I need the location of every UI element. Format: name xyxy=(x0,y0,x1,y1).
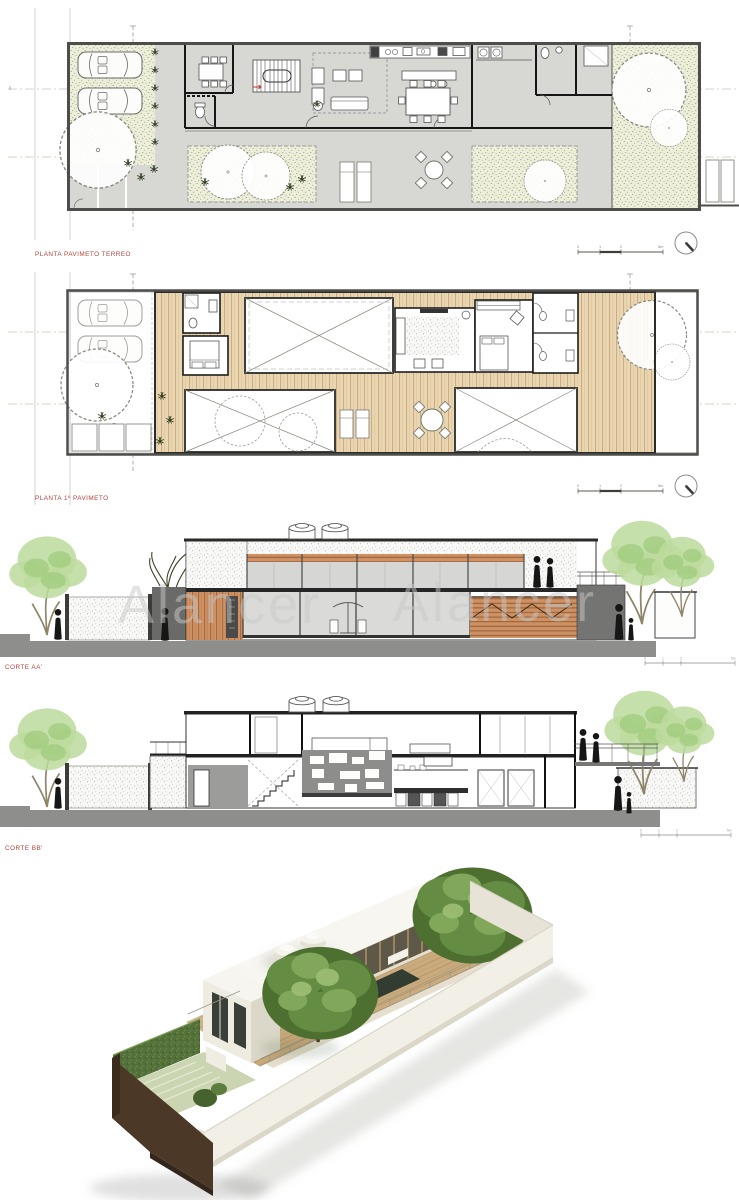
svg-text:0: 0 xyxy=(644,657,646,661)
plan-body xyxy=(60,43,739,210)
svg-text:5m: 5m xyxy=(727,829,732,833)
scale-tick: 0 xyxy=(577,244,580,249)
section-aa-label: CORTE AA' xyxy=(5,664,42,671)
toilet xyxy=(195,103,205,118)
svg-text:5m: 5m xyxy=(731,657,736,661)
svg-text:2: 2 xyxy=(676,829,678,833)
tree-plan xyxy=(61,349,133,421)
void-over-living xyxy=(245,298,393,373)
edge-loungers xyxy=(700,160,739,206)
study-room xyxy=(199,57,227,87)
water-tank-icon xyxy=(322,523,348,539)
svg-text:0: 0 xyxy=(640,829,642,833)
tv-room xyxy=(395,308,475,372)
void-over-courtyard-1 xyxy=(185,390,335,452)
bathrooms-2-3 xyxy=(533,293,578,373)
north-arrow-icon xyxy=(675,232,697,254)
bookshelf xyxy=(302,750,392,797)
ground xyxy=(0,806,660,827)
water-tank-icon xyxy=(323,696,349,712)
scale-bar-small: 0 1 2 5m xyxy=(644,657,736,666)
plan-body xyxy=(61,290,698,455)
stairs xyxy=(253,60,300,92)
svg-text:1: 1 xyxy=(658,829,660,833)
bedroom-2 xyxy=(475,300,533,372)
water-tank-icon xyxy=(289,696,315,712)
bedroom-1 xyxy=(183,336,228,375)
scale-tick: 0 xyxy=(577,483,580,488)
scale-tick: 1 xyxy=(599,244,601,249)
building-section xyxy=(150,711,577,808)
void-over-courtyard-2 xyxy=(455,388,577,452)
plan-first-label: PLANTA 1º PAVIMETO xyxy=(35,495,109,502)
ground-floor-plan: 0 1 2 5m PLANTA PAVIMETO TERREO xyxy=(0,0,739,268)
north-arrow-icon xyxy=(675,475,697,497)
water-tank-icon xyxy=(289,523,315,539)
section-bb-label: CORTE BB' xyxy=(5,845,43,852)
plan-ground-label: PLANTA PAVIMETO TERREO xyxy=(35,251,131,258)
svg-text:2: 2 xyxy=(680,657,682,661)
bathroom-1 xyxy=(183,293,220,333)
watermark: Alancer xyxy=(393,573,597,633)
scale-bar: 0 1 2 5m xyxy=(577,244,663,255)
section-bb: 0 1 2 5m CORTE BB' xyxy=(0,682,739,858)
scale-bar: 0 1 2 5m xyxy=(577,483,663,494)
scale-tick: 2 xyxy=(620,483,622,488)
street-wall xyxy=(65,763,152,810)
watermark: Alancer xyxy=(118,575,322,635)
scale-tick: 1 xyxy=(599,483,601,488)
storage-roofs xyxy=(72,424,151,451)
scale-tick: 5m xyxy=(658,483,663,488)
section-aa: Alancer Alancer 0 1 2 5m CORTE AA' xyxy=(0,510,739,682)
first-floor-plan: 0 1 2 5m PLANTA 1º PAVIMETO xyxy=(0,268,739,510)
svg-text:1: 1 xyxy=(662,657,664,661)
scale-tick: 2 xyxy=(620,244,622,249)
architectural-sheet: 0 1 2 5m PLANTA PAVIMETO TERREO xyxy=(0,0,739,1200)
isometric-render xyxy=(0,858,739,1200)
scale-bar-small: 0 1 2 5m xyxy=(640,829,732,838)
scale-tick: 5m xyxy=(658,244,663,249)
